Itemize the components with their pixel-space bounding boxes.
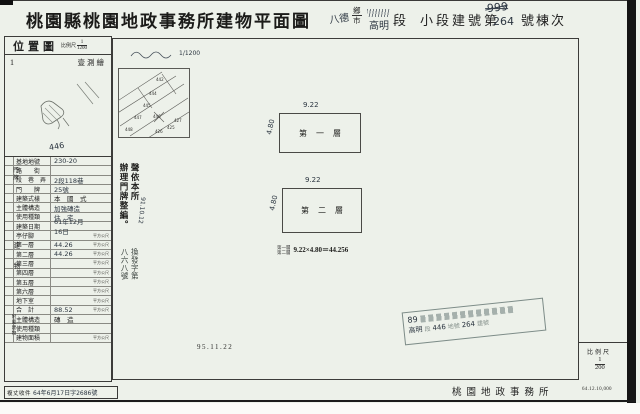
parcel-number: 427	[174, 118, 182, 123]
parcel-number: 442	[156, 77, 164, 82]
crossed-out-section-scribble	[367, 9, 390, 17]
scanned-building-plan-sheet: 桃園縣桃園地政事務所建物平面圖 八德 鄉 市 高明 段 小段建號第 999 26…	[0, 0, 640, 414]
renumber-stamp-box: 89 高明 段 446 地號 264 建號	[402, 298, 547, 346]
row-label: 使用種類	[14, 324, 51, 332]
drawing-scale-label: 比例尺	[587, 347, 611, 356]
table-row: 第四層 平方公尺	[5, 269, 111, 278]
table-row: 基地地號 230-20	[5, 157, 111, 166]
unit-township: 鄉	[352, 6, 362, 16]
scale-label: 比例尺	[61, 42, 76, 49]
location-map-scale: 比例尺 1 1200	[61, 40, 87, 51]
calc-floor2: 第二層	[277, 250, 291, 255]
scale-fraction: 1 1200	[77, 40, 87, 51]
floor2-label: 第二層	[292, 205, 352, 216]
strikethrough-mark	[485, 8, 508, 9]
stamp-section-label: 段	[424, 324, 431, 334]
floor1-outline: 第一層	[279, 113, 361, 153]
row-label: 基地地號	[14, 157, 51, 165]
parcel-number: 426	[155, 129, 163, 134]
row-value: 磚 造	[51, 314, 88, 324]
row-value: 88.52	[51, 306, 88, 314]
group-label-building-area: 建物	[10, 242, 20, 306]
suffix-label: 號棟次	[521, 10, 566, 29]
calculation-expression: 9.22×4.80＝44.256	[294, 245, 349, 255]
drawing-scale-cell: 比例尺 1 200 64.12.10,000	[579, 342, 627, 402]
row-value: 230-20	[51, 157, 88, 165]
survey-receipt-label: 複丈收件	[7, 389, 31, 397]
row-label: 建築式樣	[14, 194, 51, 202]
survey-receipt-value: 64年6月17日字2686號	[33, 388, 97, 397]
row-unit: 平方公尺	[88, 298, 111, 304]
group-label-doorplate: 門牌	[11, 167, 19, 223]
table-row: 第二層 44.26 平方公尺	[5, 250, 111, 259]
row-label: 段 巷 弄	[14, 176, 51, 184]
stamp-parcel-handwritten: 446	[432, 323, 446, 332]
drawing-scale-denominator: 200	[595, 365, 605, 372]
issuing-office-name: 桃園地政事務所	[452, 384, 554, 398]
section-handwritten: 高明	[369, 17, 389, 32]
row-unit: 平方公尺	[88, 307, 111, 313]
row-unit: 平方公尺	[88, 242, 111, 248]
map-corner-number: 1	[10, 58, 14, 67]
calculation-floor-list: 第一層 第二層	[277, 245, 291, 256]
building-data-table: 基地地號 230-20 路 街 段 巷 弄 2段118巷	[5, 156, 111, 343]
table-row: 使用種類	[5, 324, 111, 333]
stamp-section-handwritten: 高明	[408, 324, 423, 335]
map-parcel-handwritten: 446	[48, 141, 65, 153]
page-title: 桃園縣桃園地政事務所建物平面圖	[26, 7, 311, 32]
township-handwritten: 八德	[328, 9, 350, 27]
scan-margin	[0, 403, 640, 414]
floor1-label: 第一層	[290, 128, 350, 139]
parcel-number: 446	[153, 114, 161, 119]
group-cell	[5, 222, 14, 230]
top-border-line	[0, 0, 636, 1]
map-note: 壹測繪	[78, 57, 107, 68]
right-border-bar	[627, 0, 636, 403]
drawing-scale-fraction: 1 200	[595, 357, 605, 371]
stamp-year-handwritten: 89	[407, 314, 418, 324]
plot-date: 95.11.22	[197, 343, 233, 351]
parcel-number: 425	[167, 125, 175, 130]
floor2-outline: 第二層	[282, 188, 362, 233]
table-row: 建築日期 61年12月16日	[5, 222, 111, 231]
floor1-height-dimension: 4.80	[265, 119, 276, 136]
row-unit: 平方公尺	[88, 288, 111, 294]
group-cell	[5, 231, 14, 239]
bottom-border-line	[0, 400, 636, 402]
row-label: 建物面積	[14, 334, 51, 342]
floor2-height-dimension: 4.80	[268, 195, 279, 212]
parcel-number: 444	[149, 91, 157, 96]
scan-corner-mark	[0, 0, 13, 5]
survey-receipt-box: 複丈收件 64年6月17日字2686號	[4, 386, 118, 399]
group-cell	[5, 157, 14, 165]
row-value: 61年12月16日	[51, 216, 88, 236]
floor1-width-dimension: 9.22	[303, 101, 319, 109]
row-value: 44.26	[51, 241, 88, 249]
floor-plan-drawing-area: 1/1200 442 444 445 447 448 446	[112, 38, 579, 380]
area-calculation: 第一層 第二層 9.22×4.80＝44.256	[277, 245, 348, 256]
table-row: 第一層 44.26 平方公尺	[5, 241, 111, 250]
group-cell	[5, 306, 14, 314]
location-map-header: 位置圖 比例尺 1 1200	[5, 37, 111, 55]
row-label: 門 牌	[14, 185, 51, 193]
table-row: 主體構造 磚 造	[5, 315, 111, 324]
row-unit: 平方公尺	[88, 279, 111, 285]
annotation-column: 八六八號	[119, 248, 129, 280]
annotation-date-handwritten: 91.10.12	[137, 197, 147, 224]
row-label: 合 計	[14, 306, 51, 314]
unit-city: 市	[352, 16, 362, 25]
row-label: 路 街	[14, 166, 51, 174]
table-row: 第三層 平方公尺	[5, 259, 111, 268]
parcel-number: 445	[143, 103, 151, 108]
location-map-title: 位置圖	[5, 38, 58, 54]
reissue-number-annotation: 換發字第 八六八號	[119, 248, 139, 280]
parcel-number: 448	[125, 127, 133, 132]
row-unit: 平方公尺	[88, 233, 111, 239]
township-unit-label: 鄉 市	[352, 6, 362, 26]
handwritten-note-squiggle	[129, 50, 177, 60]
row-label: 建築日期	[14, 222, 51, 230]
row-unit: 平方公尺	[88, 270, 111, 276]
stamp-building-label: 建號	[477, 317, 490, 327]
table-row: 地下室 平方公尺	[5, 296, 111, 305]
cadastral-parcel-sketch: 442 444 445 447 448 446 425 426 427	[118, 68, 190, 138]
group-label-annex: 附屬建物	[11, 314, 17, 342]
location-map-area: 1 壹測繪 446	[5, 54, 111, 156]
row-label: 主體構造	[14, 203, 51, 211]
section-label: 段	[393, 10, 406, 29]
note-scale-handwritten: 1/1200	[179, 50, 200, 57]
annotation-column: 辦理門牌整編。	[118, 163, 129, 230]
table-row: 第六層 平方公尺	[5, 287, 111, 296]
row-label: 亭仔腳	[14, 231, 51, 239]
building-no-handwritten: 264	[493, 15, 514, 28]
form-print-code: 64.12.10,000	[582, 387, 612, 392]
row-unit: 平方公尺	[88, 251, 111, 257]
table-row: 建物面積 平方公尺	[5, 334, 111, 343]
row-value: 44.26	[51, 250, 88, 258]
stamp-building-handwritten: 264	[461, 320, 475, 329]
sidebar-location-panel: 位置圖 比例尺 1 1200 1 壹測繪 446	[4, 36, 112, 382]
row-label: 主體構造	[14, 315, 51, 323]
table-row: 第五層 平方公尺	[5, 278, 111, 287]
location-sketch-scribble	[19, 80, 103, 142]
row-unit: 平方公尺	[88, 335, 111, 341]
scale-denominator: 1200	[77, 46, 87, 51]
parcel-number: 447	[134, 115, 142, 120]
building-no-old-crossed: 999	[486, 0, 508, 15]
stamp-parcel-label: 地號	[447, 321, 460, 331]
row-label: 使用種類	[14, 213, 51, 221]
annotation-column: 換發字第	[129, 248, 139, 280]
floor2-width-dimension: 9.22	[305, 176, 321, 184]
row-unit: 平方公尺	[88, 260, 111, 266]
